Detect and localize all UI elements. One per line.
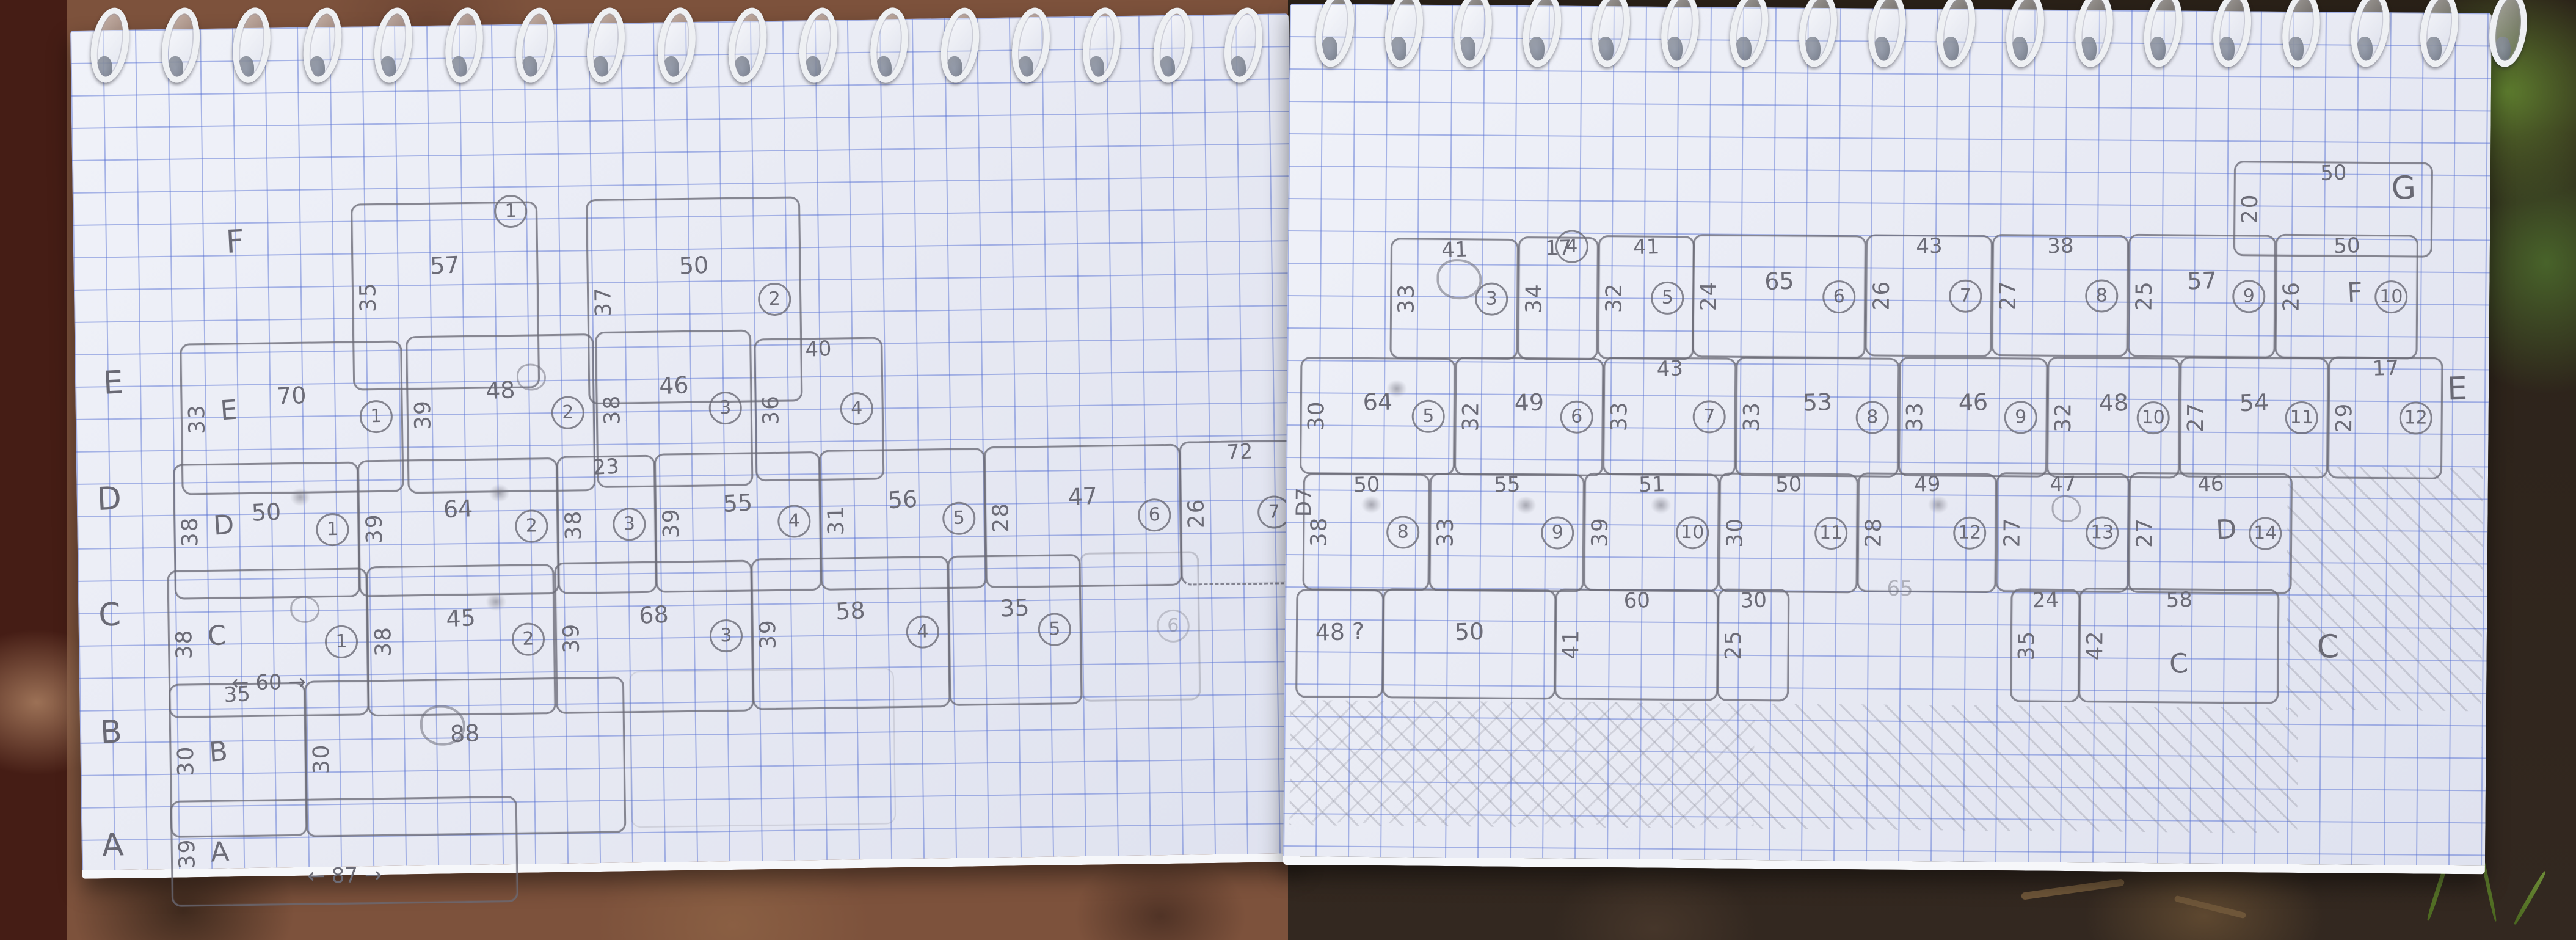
stone-sequence-badge: 7 — [1692, 400, 1725, 433]
stone-sequence-badge: 7 — [1949, 279, 1982, 312]
stone-height-value: 32 — [1602, 279, 1627, 316]
stone-width-value: 55 — [1431, 470, 1583, 499]
stone-sequence-badge: 3 — [613, 508, 646, 541]
stone-row-letter: F — [2346, 277, 2363, 308]
stone-F3: 33413 — [1389, 238, 1519, 360]
stone-sequence-badge: 11 — [1814, 517, 1847, 550]
stone-width-value: 35 — [170, 679, 304, 710]
stone-sequence-badge: 2 — [551, 396, 584, 429]
stone-sequence-badge: 11 — [2285, 401, 2318, 434]
stone-sequence-badge: 9 — [2004, 401, 2037, 434]
stone-sequence-badge: 10 — [2374, 280, 2407, 313]
stone-sequence-badge: 3 — [1475, 282, 1508, 315]
stone-D13: 274713 — [1995, 472, 2130, 593]
stone-height-value: 38 — [1306, 513, 1331, 550]
stone-D10: 395110 — [1583, 473, 1720, 592]
stone-sequence-badge: 5 — [1651, 281, 1684, 314]
stone-height-value: 30 — [1722, 514, 1747, 551]
stone-sequence-badge: 6 — [1560, 400, 1593, 433]
stone-sequence-badge: 9 — [1541, 516, 1574, 549]
stone-width-value: 23 — [558, 453, 654, 482]
pencil-scribble-mark — [1650, 495, 1671, 514]
stone-height-value: 33 — [1394, 280, 1419, 316]
pencil-scribble-mark — [289, 487, 310, 506]
stone-row-letter: C — [2080, 644, 2278, 683]
stone-sequence-badge: 5 — [1038, 613, 1071, 646]
stone-height-value: 35 — [355, 279, 381, 316]
stone-height-value: 34 — [1521, 280, 1546, 316]
stone-D8: 38508 — [1302, 473, 1430, 591]
row-label-D: D — [96, 480, 122, 518]
stone-sequence-badge: 6 — [1138, 498, 1171, 532]
stone-sequence-badge: 12 — [2400, 401, 2432, 434]
stone-E6: 32496 — [1454, 357, 1604, 476]
stone-height-value: 28 — [1861, 514, 1886, 550]
left-page: FEDCBA35571375023370E1394823846336404385… — [70, 13, 1300, 879]
row-label-F: F — [225, 224, 245, 261]
stone-row-letter: C — [206, 620, 227, 652]
outdoor-photo-scene: FEDCBA35571375023370E1394823846336404385… — [0, 0, 2576, 940]
stone-D14: 2746D14 — [2128, 472, 2293, 594]
stone-sequence-badge: 3 — [710, 619, 743, 653]
stone-sequence-badge: 1 — [316, 513, 349, 547]
stone-E9: 33469 — [1898, 357, 2048, 478]
twig — [2021, 878, 2125, 900]
stone-height-value: 30 — [173, 742, 199, 779]
stone-width-value: 40 — [755, 334, 882, 365]
stone-width-value: 41 — [1599, 234, 1693, 261]
stone-sequence-badge: 10 — [2137, 401, 2170, 434]
stone-width-value: 72 — [1181, 437, 1299, 467]
stone-width-value: 46 — [2130, 470, 2291, 498]
stone-sequence-badge: 1 — [325, 625, 358, 659]
stone-E7: 33437 — [1603, 357, 1737, 476]
stone-D11: 305011 — [1718, 473, 1858, 594]
stone-sequence-badge: 6 — [1156, 610, 1190, 643]
stone-sequence-badge: 3 — [708, 392, 742, 425]
stone-F4: 34174 — [1517, 236, 1599, 360]
stone-width-value: 24 — [2012, 587, 2079, 613]
stone-height-value: 26 — [1184, 495, 1209, 532]
stone-height-value: 38 — [561, 506, 586, 544]
stone-sequence-badge: 13 — [2086, 516, 2119, 549]
stone-height-value: 29 — [2332, 399, 2357, 435]
stone-E12: 291712 — [2327, 356, 2443, 479]
row-label-C: C — [98, 596, 122, 634]
stone-F5: 32415 — [1597, 235, 1695, 360]
stone-sequence-badge: 2 — [512, 622, 545, 656]
pencil-scribble-mark — [1515, 496, 1536, 514]
stone-width-value: 50 — [1720, 470, 1857, 498]
stone-width-value: 50 — [1384, 616, 1554, 648]
stone-width-value: 50 — [2277, 232, 2417, 260]
pencil-scribble-mark — [1386, 380, 1407, 398]
stone-sequence-badge: 4 — [840, 392, 873, 426]
stone-C-r3: 4160 — [1554, 588, 1719, 701]
stone-height-value: 25 — [1721, 627, 1746, 663]
stone-F7: 26437 — [1865, 234, 1993, 357]
stone-E10: 324810 — [2047, 357, 2181, 479]
stone-sequence-badge: 8 — [1855, 401, 1888, 434]
stone-sequence-badge: 4 — [1555, 230, 1588, 263]
stone-sequence-badge: 12 — [1953, 517, 1986, 550]
stone-row-letter: D — [213, 509, 235, 542]
stone-C-r4: 2530 — [1717, 589, 1789, 702]
stone-sequence-badge: 1 — [494, 195, 528, 228]
pencil-scribble-mark — [1361, 495, 1381, 514]
stone-C-r6: 4258C — [2078, 588, 2279, 704]
stone-A1: 39A← 87 → — [170, 796, 518, 907]
stone-width-value: 58 — [2081, 585, 2278, 615]
pencil-scribble-mark — [517, 364, 547, 392]
stone-C5: 355 — [947, 554, 1082, 706]
stone-row-letter: B — [208, 735, 229, 768]
pencil-scribble-mark — [489, 484, 509, 502]
stone-height-value: 27 — [2133, 514, 2158, 551]
stone-height-value: 26 — [2279, 278, 2304, 315]
stone-sequence-badge: 14 — [2249, 517, 2282, 550]
stone-height-value: 38 — [172, 625, 197, 663]
pencil-hatching — [2286, 467, 2483, 712]
stone-F10: 2650F10 — [2274, 234, 2418, 360]
stone-sequence-badge: 2 — [515, 509, 548, 543]
stone-sequence-badge: 2 — [758, 283, 791, 316]
stone-width-value: 43 — [1867, 233, 1991, 260]
stone-height-value: 35 — [2014, 627, 2039, 663]
stone-sequence-badge: 5 — [942, 501, 976, 535]
stone-sequence-badge: 8 — [2085, 279, 2118, 312]
twig — [2174, 895, 2247, 919]
stone-height-value: 20 — [2238, 190, 2263, 227]
stone-height-value: 41 — [1559, 625, 1584, 662]
stone-row-letter: D — [2215, 514, 2237, 546]
stone-width-value: 38 — [1993, 232, 2127, 260]
stone-width-value: 57 — [353, 247, 537, 283]
stone-C-r5: 3524 — [2010, 588, 2080, 702]
stone-height-value: 33 — [1433, 514, 1458, 550]
pencil-scribble-mark — [486, 592, 506, 611]
dimension-arrow-note: ← 87 → — [173, 861, 517, 891]
stone-sequence-badge: 10 — [1676, 516, 1709, 549]
row-label-E: E — [103, 364, 125, 402]
stone-D12: 284912 — [1857, 472, 1997, 593]
stone-height-value: 37 — [591, 283, 616, 321]
stone-E8: 33538 — [1735, 357, 1900, 478]
stone-sequence-badge: 6 — [1822, 280, 1855, 313]
stone-row-letter: A — [209, 836, 230, 869]
stone-width-value: 30 — [1719, 587, 1788, 613]
stone-C-r2: 50 — [1382, 588, 1556, 699]
stone-width-value: 51 — [1585, 471, 1718, 499]
stone-height-value: 27 — [2000, 514, 2025, 550]
row-label-A: A — [101, 826, 124, 864]
grass-blade — [2512, 870, 2547, 925]
stone-width-value: 47 — [1998, 470, 2128, 498]
stone-height-value: 26 — [1869, 277, 1894, 313]
stone-height-value: 27 — [1996, 277, 2021, 313]
stone-width-value: 17 — [2330, 355, 2442, 382]
pencil-scribble-mark — [2051, 495, 2081, 522]
stone-width-value: 49 — [1859, 470, 1995, 498]
stone-sequence-badge: 5 — [1411, 400, 1444, 433]
stone-width-value: 48 ? — [1297, 618, 1382, 647]
row-label-B: B — [100, 713, 123, 751]
pencil-hatching — [1289, 700, 1755, 826]
stone-C6: 6 — [1079, 551, 1201, 702]
stone-E5: 30645 — [1300, 357, 1456, 475]
stone-width-value: 88 — [306, 712, 624, 754]
stone-F6: 24656 — [1692, 234, 1866, 359]
row-label-E: E — [2447, 371, 2467, 408]
stone-sequence-badge: 8 — [1386, 516, 1419, 548]
stone-height-value: 36 — [759, 392, 784, 429]
stone-height-value: 33 — [1607, 398, 1632, 434]
stone-C-r1: 48 ? — [1295, 589, 1384, 698]
stone-width-value: 60 — [1557, 586, 1717, 615]
stone-sequence-badge: 9 — [2232, 280, 2265, 313]
stone-D9: 33559 — [1428, 473, 1585, 592]
stone-width-value: 50 — [2235, 158, 2431, 188]
pencil-scribble-mark — [1927, 495, 1948, 514]
stone-B3 — [629, 668, 897, 828]
stone-height-value: 39 — [1587, 514, 1612, 550]
right-page: GECD765205033413341743241524656264372738… — [1283, 4, 2492, 874]
stone-sequence-badge: 1 — [359, 400, 393, 434]
stone-F8: 27388 — [1992, 234, 2130, 357]
pencil-scribble-mark — [420, 705, 466, 746]
stone-row-letter: E — [219, 395, 238, 427]
stone-E11: 275411 — [2179, 356, 2329, 478]
stone-sequence-badge: 4 — [906, 615, 940, 649]
stone-width-value: 43 — [1605, 355, 1735, 383]
stone-width-value: 50 — [588, 247, 800, 284]
pencil-scribble-mark — [290, 596, 320, 624]
stone-F9: 25579 — [2127, 234, 2276, 359]
stone-sequence-badge: 4 — [777, 505, 811, 538]
stone-width-value: 50 — [1304, 471, 1428, 498]
